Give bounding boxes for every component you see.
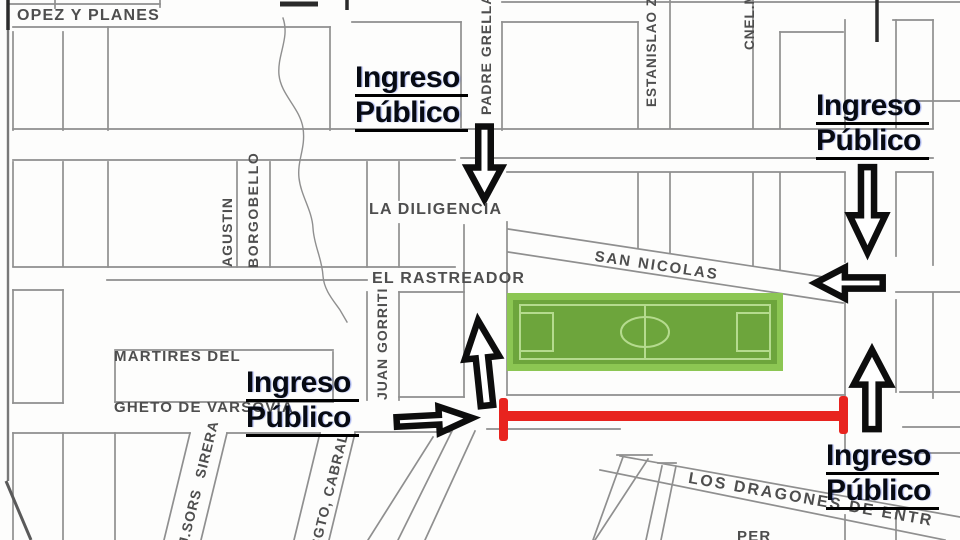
closed-street-cap-right xyxy=(839,396,848,434)
street-label-agustin: AGUSTIN xyxy=(219,197,236,267)
creek-line xyxy=(279,18,347,322)
entrance-label-center-left: Ingreso Público xyxy=(246,367,359,437)
arrow-up-icon xyxy=(461,319,504,408)
arrow-right-icon xyxy=(396,405,473,435)
entrance-label-line2: Público xyxy=(246,402,359,437)
soccer-field xyxy=(507,293,783,371)
entrance-label-line2: Público xyxy=(826,475,939,510)
street-label-martires-line1: MARTIRES DEL xyxy=(114,348,294,365)
entrance-label-line1: Ingreso xyxy=(246,367,359,402)
entrance-label-line2: Público xyxy=(816,125,929,160)
street-label-partial-bottom: PER xyxy=(737,528,771,540)
arrow-down-icon xyxy=(467,127,501,200)
entrance-label-line1: Ingreso xyxy=(816,90,929,125)
street-label-padre-grella: PADRE GRELLA xyxy=(478,0,495,115)
closed-street-marker xyxy=(499,396,848,441)
arrow-down-icon xyxy=(850,167,886,253)
closed-street-bar xyxy=(503,411,843,421)
street-label-estanislao-zevallos: ESTANISLAO ZEV xyxy=(643,0,660,107)
entrance-label-line1: Ingreso xyxy=(355,62,468,97)
street-label-borgobello: BORGOBELLO xyxy=(245,152,262,268)
street-label-cnel-m: CNEL.M xyxy=(741,0,758,50)
street-map: OPEZ Y PLANES LA DILIGENCIA EL RASTREADO… xyxy=(0,0,960,540)
closed-street-cap-left xyxy=(499,398,508,441)
entrance-label-line2: Público xyxy=(355,97,468,132)
arrow-up-icon xyxy=(854,350,891,429)
street-label-lopez-y-planes: OPEZ Y PLANES xyxy=(17,7,160,24)
street-label-el-rastreador: EL RASTREADOR xyxy=(372,270,525,287)
street-label-la-diligencia: LA DILIGENCIA xyxy=(369,201,502,218)
street-label-juan-gorriti: JUAN GORRITI xyxy=(374,288,391,400)
entrance-label-bottom-right: Ingreso Público xyxy=(826,440,939,510)
arrow-left-icon xyxy=(815,268,882,299)
entrance-label-top-center: Ingreso Público xyxy=(355,62,468,132)
entrance-label-top-right: Ingreso Público xyxy=(816,90,929,160)
entrance-label-line1: Ingreso xyxy=(826,440,939,475)
